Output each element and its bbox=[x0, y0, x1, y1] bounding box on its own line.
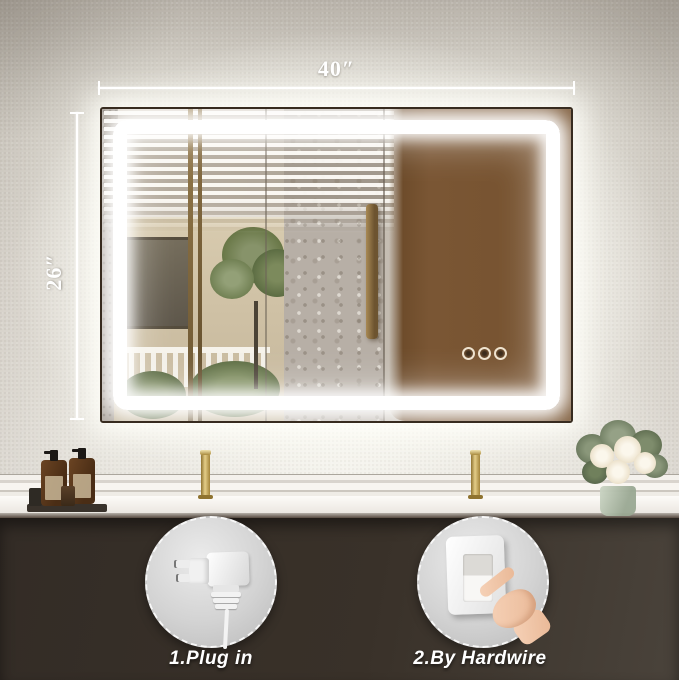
wall-switch-icon bbox=[419, 518, 551, 650]
faucet-spout bbox=[470, 450, 481, 455]
dimension-tick bbox=[70, 418, 84, 420]
plug-face bbox=[189, 558, 209, 584]
width-dimension-line bbox=[98, 87, 575, 89]
height-dimension-label: 26″ bbox=[41, 232, 67, 312]
soap-dispenser-group bbox=[25, 450, 110, 514]
faucet-stem bbox=[201, 454, 210, 496]
plug-body bbox=[206, 551, 249, 586]
plug-in-label: 1.Plug in bbox=[121, 648, 301, 670]
mirror-reflection bbox=[102, 109, 571, 421]
plug-in-callout bbox=[145, 516, 277, 648]
gold-faucet-left bbox=[196, 450, 216, 500]
hardwire-label: 2.By Hardwire bbox=[390, 648, 570, 670]
cord-rib bbox=[213, 598, 239, 603]
dispenser-pump bbox=[78, 448, 86, 459]
width-dimension: 40″ bbox=[98, 60, 575, 92]
power-cord bbox=[223, 609, 229, 649]
small-jar bbox=[61, 486, 75, 506]
faucet-spout bbox=[200, 450, 211, 455]
dispenser-pump bbox=[50, 450, 58, 461]
led-mirror bbox=[100, 107, 573, 423]
faucet-stem bbox=[471, 454, 480, 496]
dimension-tick bbox=[573, 81, 575, 95]
plug-prong bbox=[174, 560, 190, 568]
vanity-cabinet bbox=[0, 518, 679, 680]
white-flower bbox=[606, 460, 630, 484]
flower-arrangement bbox=[572, 418, 676, 518]
hardwire-callout bbox=[417, 516, 549, 648]
dimension-tick bbox=[70, 112, 84, 114]
height-dimension-line bbox=[76, 112, 78, 420]
white-flower bbox=[634, 452, 656, 474]
plug-neck bbox=[213, 585, 239, 592]
cord-rib bbox=[211, 592, 241, 597]
faucet-base bbox=[468, 495, 483, 499]
height-dimension: 26″ bbox=[40, 112, 80, 420]
led-light-band bbox=[113, 120, 560, 410]
width-dimension-label: 40″ bbox=[98, 56, 575, 82]
product-image: 40″ 26″ bbox=[0, 0, 679, 680]
gold-faucet-right bbox=[466, 450, 486, 500]
faucet-base bbox=[198, 495, 213, 499]
bottle-label bbox=[73, 474, 91, 498]
power-plug-icon bbox=[147, 518, 279, 650]
plug-prong bbox=[176, 574, 190, 582]
flower-vase bbox=[600, 486, 636, 516]
dimension-tick bbox=[98, 81, 100, 95]
